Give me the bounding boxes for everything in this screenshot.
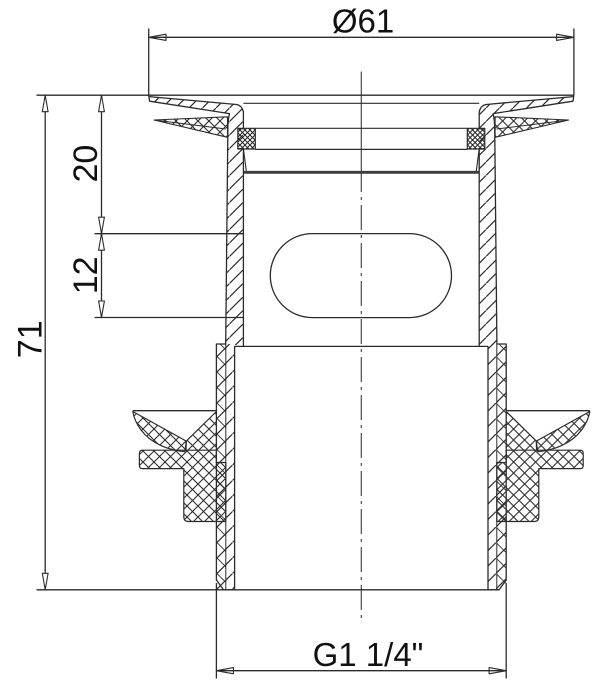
svg-text:71: 71 — [12, 320, 50, 358]
svg-text:12: 12 — [67, 256, 105, 294]
svg-text:G1 1/4": G1 1/4" — [313, 636, 424, 673]
svg-text:20: 20 — [67, 145, 105, 183]
svg-text:Ø61: Ø61 — [332, 3, 394, 40]
